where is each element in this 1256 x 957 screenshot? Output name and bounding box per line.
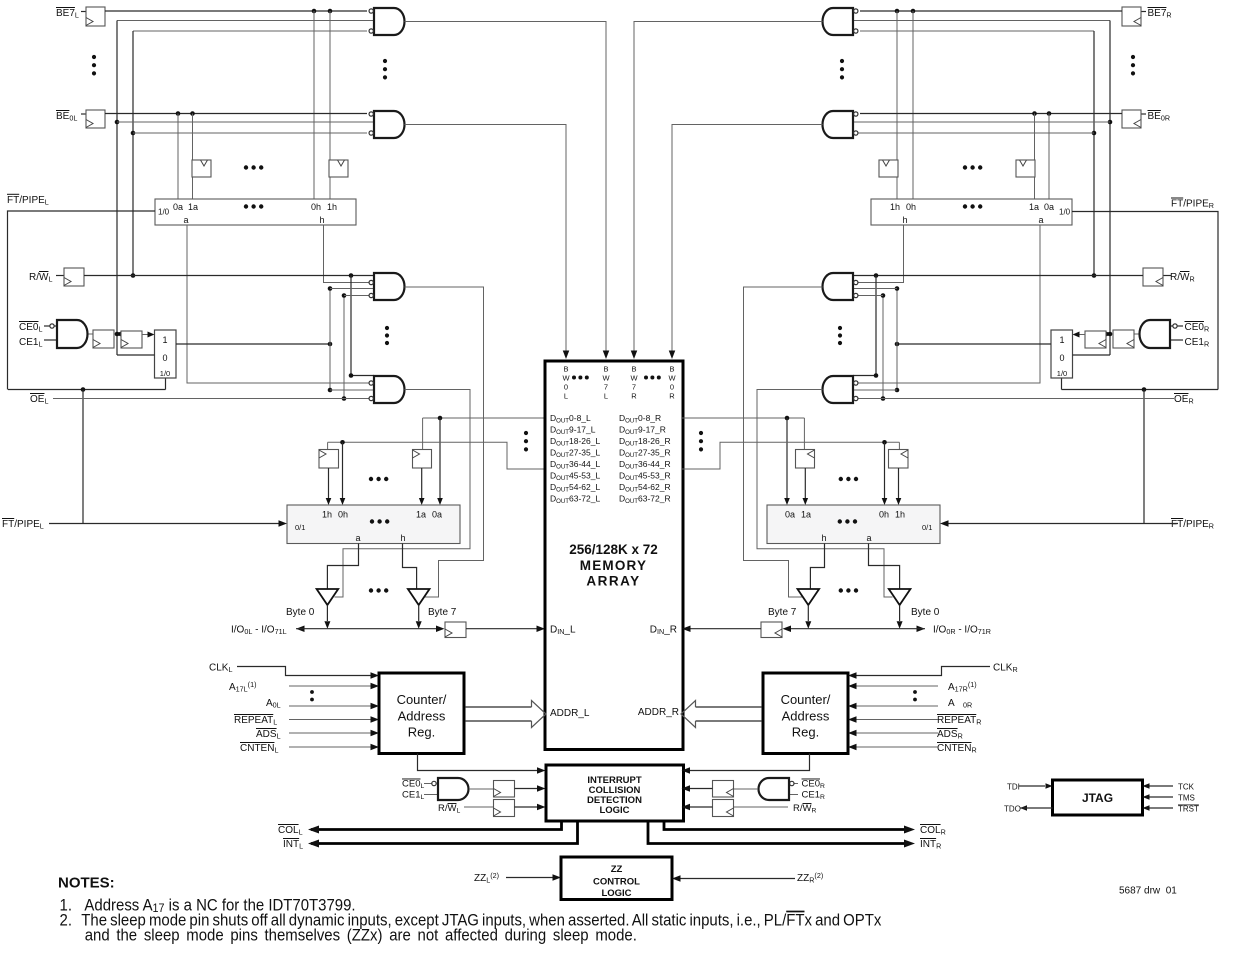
svg-text:a: a: [866, 533, 871, 543]
svg-text:Byte 7: Byte 7: [428, 607, 457, 618]
svg-text:0a: 0a: [1044, 202, 1054, 212]
svg-text:1h: 1h: [890, 202, 900, 212]
svg-text:COLR​: COLR​: [920, 825, 946, 837]
svg-text:W: W: [630, 374, 638, 383]
svg-text:REPEATR​: REPEATR​: [937, 715, 981, 727]
svg-text:R/WL​: R/WL​: [29, 272, 52, 284]
svg-text:CE0R​: CE0R​: [1185, 322, 1210, 334]
svg-text:Byte 0: Byte 0: [286, 607, 315, 618]
svg-text:I/O0R​ - I/O71R​: I/O0R​ - I/O71R​: [933, 625, 991, 637]
svg-text:TRST: TRST: [1178, 805, 1199, 814]
svg-text:0h: 0h: [906, 202, 916, 212]
svg-text:1a: 1a: [416, 510, 426, 520]
svg-text:256/128K x 72: 256/128K x 72: [569, 542, 658, 557]
svg-text:1: 1: [162, 335, 167, 345]
svg-text:h: h: [400, 533, 405, 543]
svg-text:COLL​: COLL​: [278, 825, 303, 837]
svg-text:FT/PIPER​: FT/PIPER​: [1171, 519, 1214, 531]
svg-text:R: R: [669, 392, 675, 401]
svg-text:OER​: OER​: [1174, 394, 1194, 406]
svg-text:LOGIC: LOGIC: [599, 805, 629, 816]
svg-text:1/0: 1/0: [160, 369, 170, 378]
svg-text:h: h: [902, 215, 907, 225]
svg-text:LOGIC: LOGIC: [601, 888, 631, 899]
svg-text:TCK: TCK: [1178, 783, 1195, 792]
svg-text:1/0: 1/0: [158, 208, 170, 217]
svg-text:OEL​: OEL​: [30, 394, 48, 406]
svg-text:CNTENR​: CNTENR​: [937, 743, 977, 755]
svg-text:0: 0: [564, 383, 568, 392]
svg-text:1a: 1a: [801, 510, 811, 520]
svg-text:CE0L​: CE0L​: [19, 322, 42, 334]
svg-text:a: a: [355, 533, 360, 543]
svg-text:B: B: [563, 365, 568, 374]
svg-text:CNTENL​: CNTENL​: [240, 743, 278, 755]
svg-text:B: B: [631, 365, 636, 374]
svg-text:0: 0: [162, 353, 167, 363]
svg-text:R/WR​: R/WR​: [1170, 272, 1195, 284]
svg-text:FT/PIPEL​: FT/PIPEL​: [2, 519, 44, 531]
svg-text:BE7L​: BE7L​: [56, 8, 79, 20]
svg-text:R: R: [631, 392, 637, 401]
svg-text:BE7R​: BE7R​: [1148, 8, 1172, 20]
svg-text:ADSL​: ADSL​: [256, 729, 281, 741]
svg-text:ADSR​: ADSR​: [937, 729, 963, 741]
svg-text:L: L: [564, 392, 568, 401]
svg-text:ADDR_R: ADDR_R: [638, 707, 679, 718]
svg-text:0h: 0h: [879, 510, 889, 520]
svg-text:DIN​_R: DIN​_R: [650, 625, 677, 637]
svg-text:0h: 0h: [311, 202, 321, 212]
svg-text:7: 7: [604, 383, 608, 392]
svg-text:INTL​: INTL​: [283, 839, 303, 851]
svg-text:ZZ: ZZ: [611, 864, 623, 875]
svg-text:Counter/: Counter/: [781, 692, 831, 707]
svg-text:BE0L​: BE0L​: [56, 111, 77, 123]
svg-text:NOTES:: NOTES:: [58, 875, 115, 892]
svg-text:h: h: [821, 533, 826, 543]
svg-text:ARRAY: ARRAY: [586, 574, 640, 589]
svg-text:a: a: [1038, 215, 1043, 225]
svg-text:L: L: [604, 392, 608, 401]
svg-text:and the sleep mode pins themse: and the sleep mode pins themselves (ZZx)…: [85, 927, 637, 945]
svg-text:0/1: 0/1: [922, 523, 932, 532]
svg-text:Byte 0: Byte 0: [911, 607, 940, 618]
svg-text:A 0R​: A 0R​: [948, 698, 972, 710]
svg-text:CLKL​: CLKL​: [209, 663, 232, 675]
svg-text:Address: Address: [782, 709, 830, 724]
svg-text:h: h: [319, 215, 324, 225]
svg-text:1h: 1h: [327, 202, 337, 212]
svg-text:0/1: 0/1: [295, 523, 305, 532]
svg-text:CLKR​: CLKR​: [993, 663, 1018, 675]
svg-text:0a: 0a: [173, 202, 183, 212]
svg-text:1a: 1a: [1029, 202, 1039, 212]
svg-text:W: W: [668, 374, 676, 383]
svg-text:5687 drw 01: 5687 drw 01: [1119, 886, 1177, 897]
svg-text:Counter/: Counter/: [397, 692, 447, 707]
svg-text:0: 0: [670, 383, 674, 392]
svg-text:MEMORY: MEMORY: [580, 558, 647, 573]
svg-text:0h: 0h: [338, 510, 348, 520]
svg-text:1h: 1h: [895, 510, 905, 520]
svg-text:1/0: 1/0: [1059, 208, 1071, 217]
svg-text:INTR​: INTR​: [920, 839, 941, 851]
svg-text:B: B: [669, 365, 674, 374]
svg-text:I/O0L​ - I/O71L​: I/O0L​ - I/O71L​: [231, 625, 287, 637]
svg-text:CE1L​: CE1L​: [19, 337, 42, 349]
svg-text:FT/PIPEL​: FT/PIPEL​: [7, 195, 49, 207]
svg-text:W: W: [562, 374, 570, 383]
svg-text:ADDR_L: ADDR_L: [550, 708, 590, 719]
svg-text:B: B: [603, 365, 608, 374]
svg-text:W: W: [602, 374, 610, 383]
svg-text:BE0R​: BE0R​: [1148, 111, 1171, 123]
svg-text:Reg.: Reg.: [408, 725, 435, 740]
svg-text:0a: 0a: [785, 510, 795, 520]
svg-text:0: 0: [1059, 353, 1064, 363]
svg-text:1: 1: [1059, 335, 1064, 345]
svg-text:TMS: TMS: [1178, 794, 1195, 803]
svg-text:7: 7: [632, 383, 636, 392]
svg-text:FT/PIPER​: FT/PIPER​: [1171, 199, 1214, 211]
svg-text:CONTROL: CONTROL: [593, 877, 640, 888]
svg-text:A0L​: A0L​: [266, 698, 281, 710]
svg-text:Address: Address: [398, 709, 446, 724]
svg-text:REPEATL​: REPEATL​: [234, 715, 277, 727]
svg-text:a: a: [183, 215, 188, 225]
svg-text:0a: 0a: [432, 510, 442, 520]
svg-text:1/0: 1/0: [1057, 369, 1067, 378]
svg-text:1a: 1a: [188, 202, 198, 212]
svg-text:Byte 7: Byte 7: [768, 607, 797, 618]
svg-text:JTAG: JTAG: [1082, 791, 1113, 805]
svg-text:1h: 1h: [322, 510, 332, 520]
svg-text:DIN​_L: DIN​_L: [550, 625, 576, 637]
svg-text:TDI: TDI: [1007, 783, 1020, 792]
svg-text:CE1R​: CE1R​: [1185, 337, 1210, 349]
svg-text:TDO: TDO: [1004, 805, 1021, 814]
svg-text:Reg.: Reg.: [792, 725, 819, 740]
